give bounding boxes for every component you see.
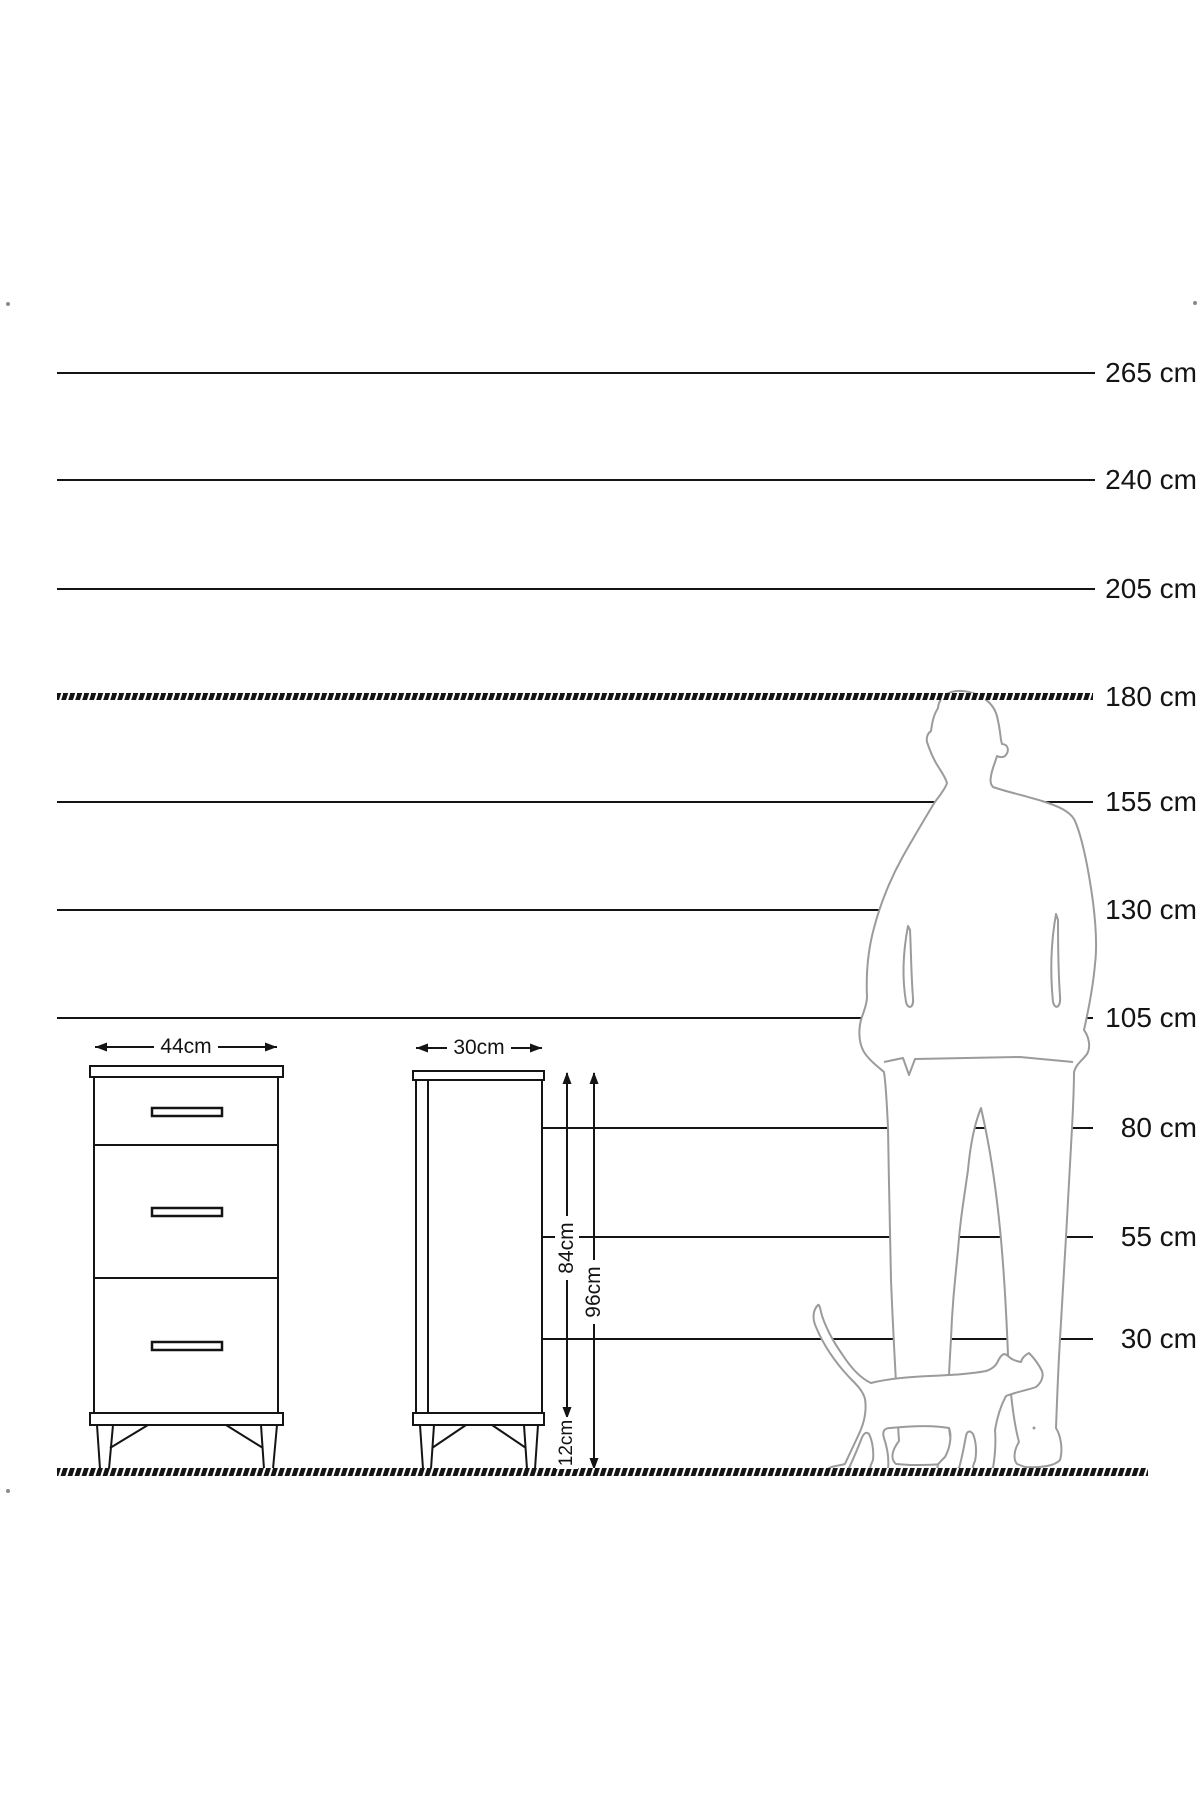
- ground-line: [57, 1468, 1148, 1476]
- drawer-handle-1: [152, 1108, 222, 1116]
- trouser-speck: [1033, 1427, 1036, 1430]
- arrow-right-icon: [530, 1044, 542, 1053]
- total-height-label: 96cm: [582, 1260, 606, 1324]
- front-body: [94, 1077, 278, 1413]
- arrow-up-icon: [590, 1072, 599, 1084]
- front-top-panel: [90, 1066, 283, 1077]
- height-label-265: 265 cm: [1067, 356, 1197, 390]
- arrow-left-icon: [416, 1044, 428, 1053]
- cabinet-side-view: [413, 1071, 544, 1469]
- arrow-up-icon: [563, 1072, 572, 1084]
- height-label-105: 105 cm: [1067, 1001, 1197, 1035]
- front-right-leg: [261, 1425, 277, 1469]
- height-label-30: 30 cm: [1067, 1322, 1197, 1356]
- drawer-handle-2: [152, 1208, 222, 1216]
- diagram-canvas: [0, 0, 1200, 1800]
- front-right-leg-strut: [226, 1425, 263, 1448]
- body-height-label: 84cm: [555, 1216, 579, 1280]
- arrow-right-icon: [265, 1043, 277, 1052]
- height-label-205: 205 cm: [1067, 572, 1197, 606]
- height-label-155: 155 cm: [1067, 785, 1197, 819]
- height-label-80: 80 cm: [1067, 1111, 1197, 1145]
- drawer-handle-3: [152, 1342, 222, 1350]
- height-label-55: 55 cm: [1067, 1220, 1197, 1254]
- cabinet-front-view: [90, 1066, 283, 1469]
- man-silhouette: [859, 691, 1096, 1467]
- front-left-leg-strut: [110, 1425, 148, 1448]
- side-right-leg-strut: [492, 1425, 526, 1448]
- front-bottom-panel: [90, 1413, 283, 1425]
- height-label-180: 180 cm: [1067, 680, 1197, 714]
- side-top-panel: [413, 1071, 544, 1080]
- side-bottom-panel: [413, 1413, 544, 1425]
- side-left-leg-strut: [432, 1425, 466, 1448]
- size-diagram: 265 cm 240 cm 205 cm 180 cm 155 cm 130 c…: [0, 0, 1200, 1800]
- side-depth-label: 30cm: [447, 1036, 511, 1060]
- leg-height-label: 12cm: [556, 1417, 578, 1469]
- arrow-left-icon: [95, 1043, 107, 1052]
- height-label-130: 130 cm: [1067, 893, 1197, 927]
- man-outline: [859, 691, 1096, 1467]
- height-label-240: 240 cm: [1067, 463, 1197, 497]
- front-width-label: 44cm: [154, 1035, 218, 1059]
- side-body: [416, 1080, 542, 1413]
- height-line-180-hatched: [57, 693, 1093, 700]
